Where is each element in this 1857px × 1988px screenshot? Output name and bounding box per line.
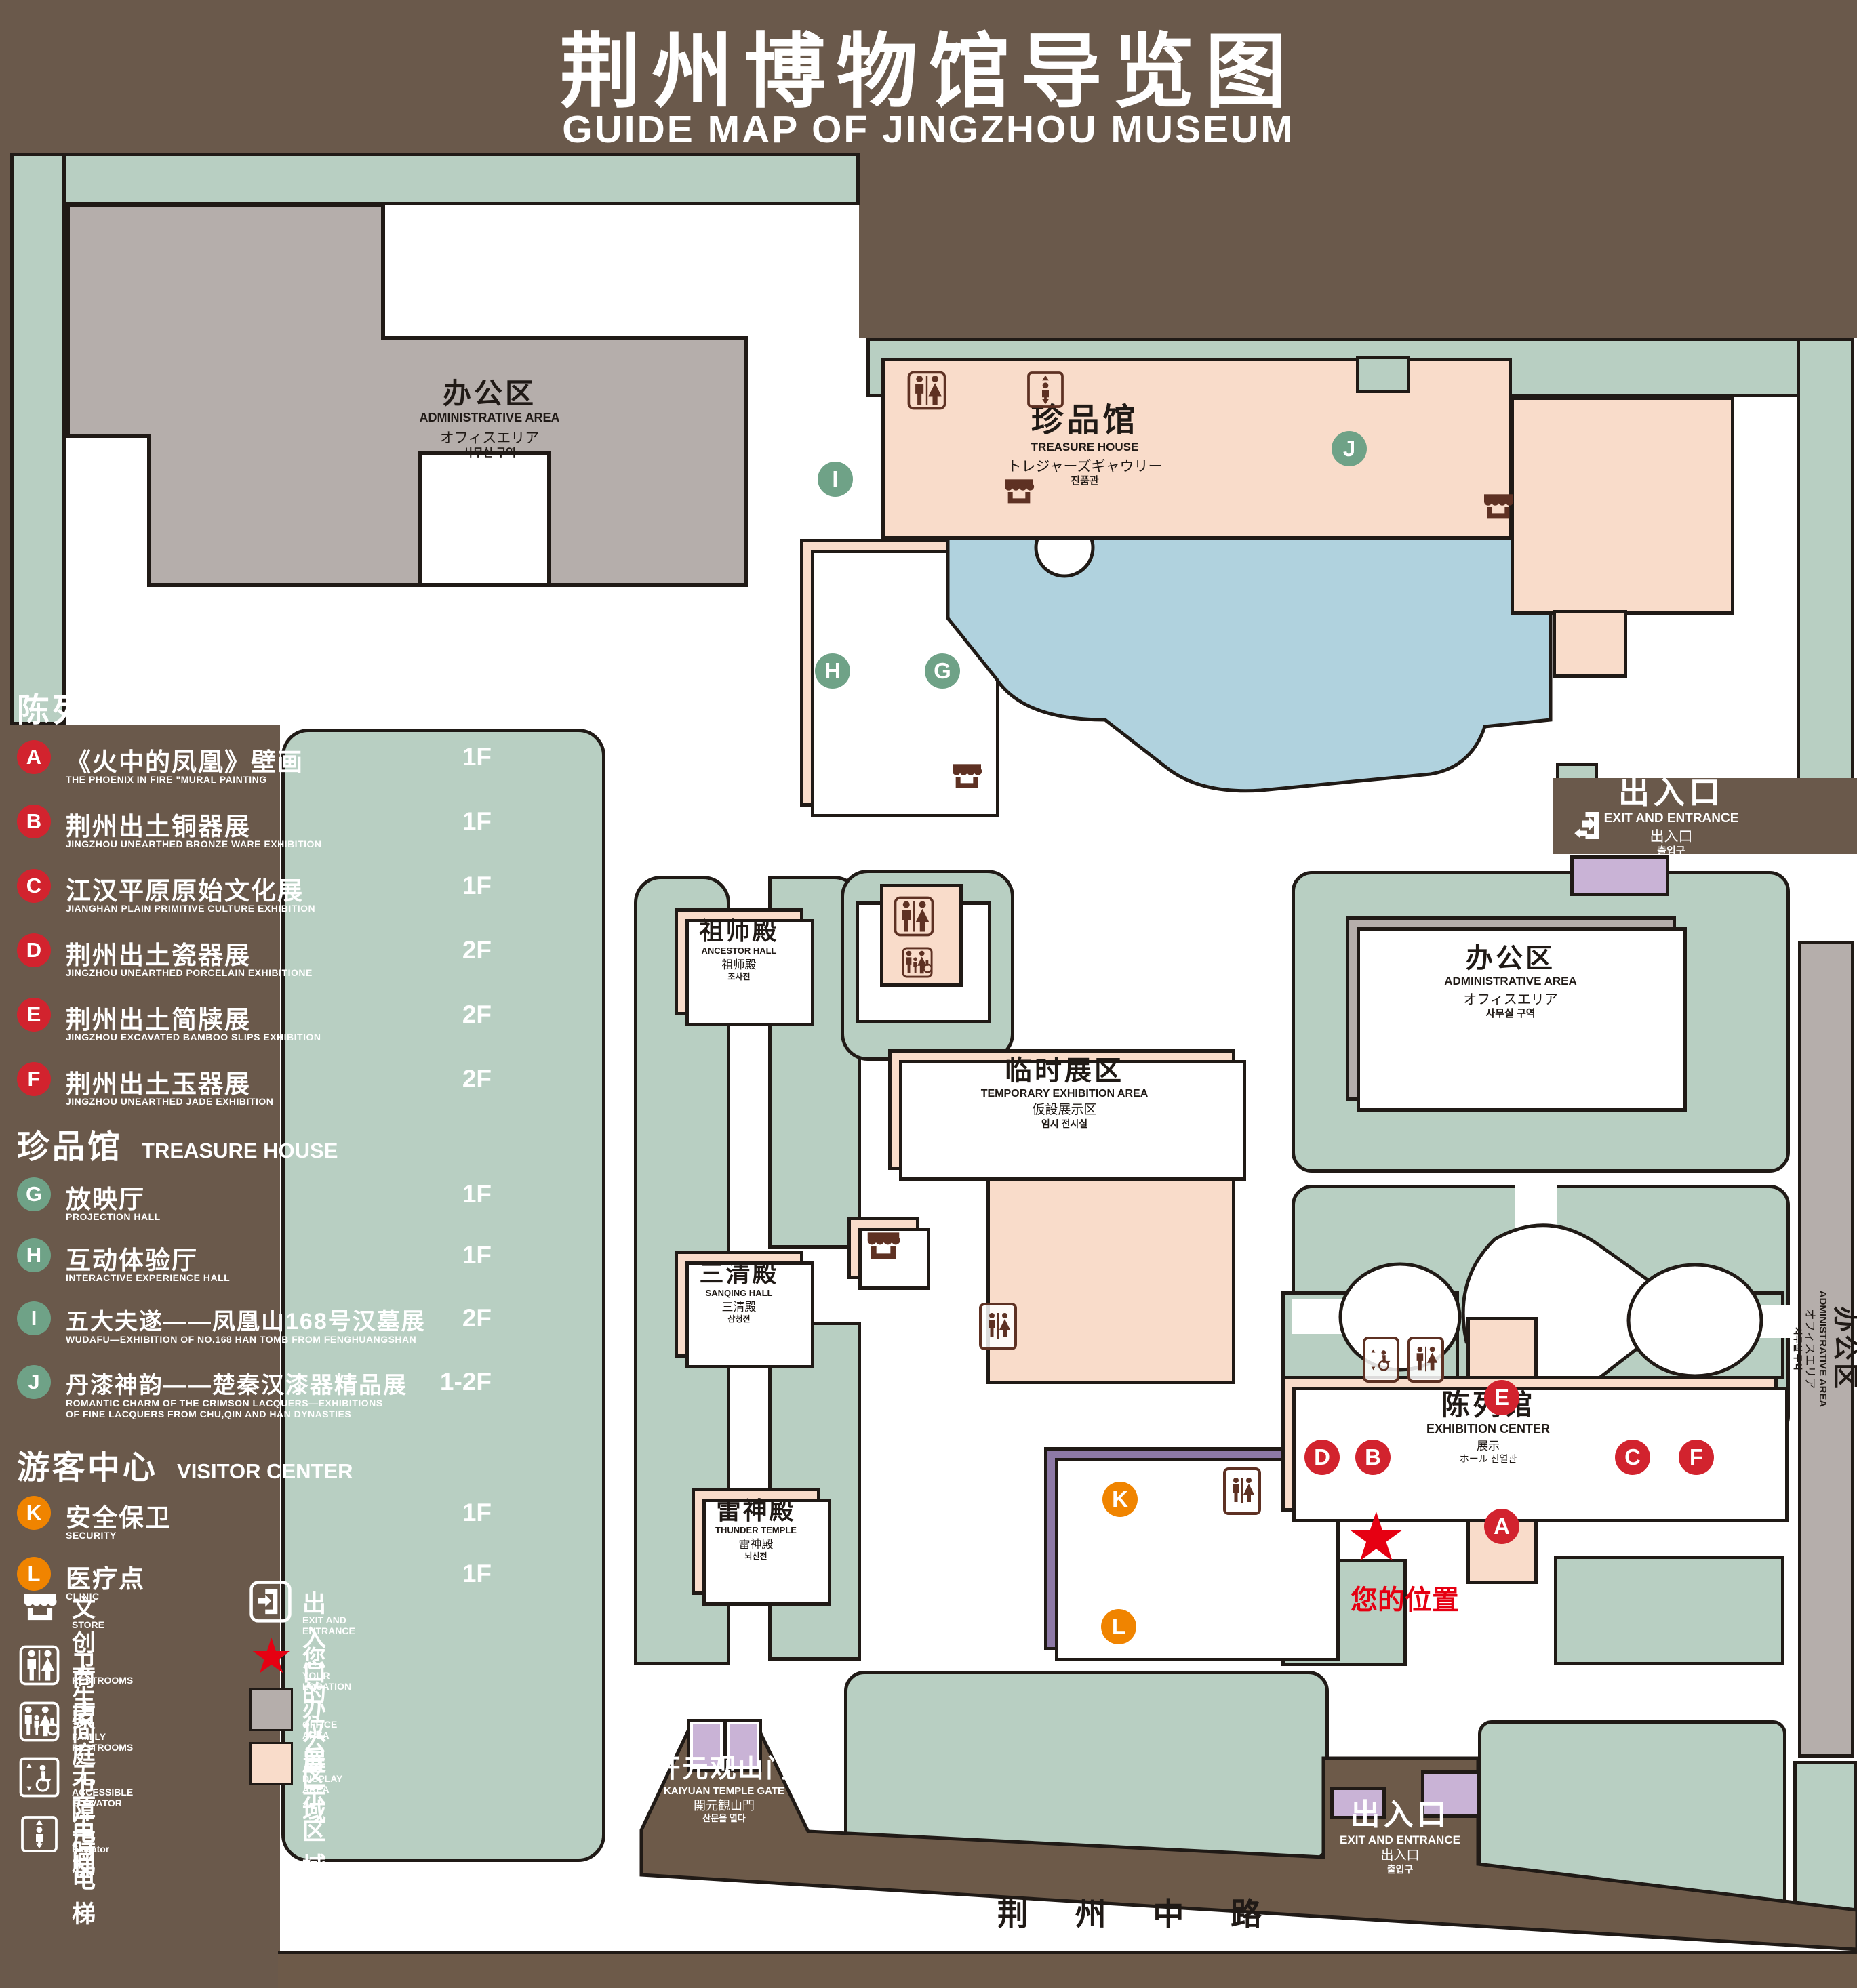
map-marker-C: C — [1615, 1440, 1650, 1475]
admin-right-sign: 办公区 ADMINISTRATIVE AREA オフィスエリア 사무실 구역 — [1444, 942, 1577, 1020]
restrooms-icon — [1407, 1337, 1444, 1383]
main-road-label: 荆 州 中 路 — [970, 1890, 1309, 1934]
map-marker-K: K — [1102, 1482, 1138, 1517]
map-marker-H: H — [815, 653, 850, 689]
your-location-label: 您的位置 — [1330, 1578, 1479, 1617]
map-marker-D: D — [1304, 1440, 1340, 1475]
treasure-house-top-notch — [1356, 356, 1410, 393]
restrooms-icon — [19, 1641, 60, 1690]
visitor-center-sign: 游客中心 VISITOR CENTER ビジターセンター 관광객 센터 — [1120, 1537, 1256, 1625]
store-icon — [948, 758, 986, 796]
elevator-icon — [19, 1810, 60, 1859]
store-icon — [1269, 1552, 1314, 1597]
thunder-temple-sign: 雷神殿 THUNDER TEMPLE 雷神殿 뇌신전 — [715, 1496, 797, 1562]
restrooms-icon — [1223, 1467, 1261, 1515]
map-marker-A: A — [1484, 1509, 1519, 1544]
entrance-building-topright — [1570, 855, 1669, 896]
admin-area-topleft — [64, 202, 753, 592]
location-star-icon: ★ — [249, 1632, 294, 1681]
family-restrooms-icon — [19, 1697, 60, 1746]
family-restrooms-icon — [902, 944, 933, 981]
store-icon — [19, 1587, 61, 1629]
exit-entrance-icon — [249, 1581, 292, 1623]
admin-topleft-sign: 办公区 ADMINISTRATIVE AREA オフィスエリア 사무실 구역 — [420, 377, 560, 460]
temporary-area-sign: 临时展区 TEMPORARY EXHIBITION AREA 仮設展示区 임시 … — [981, 1055, 1149, 1130]
restrooms-icon — [894, 892, 934, 941]
your-location-star-icon: ★ — [1346, 1503, 1407, 1571]
elevator-icon — [1025, 365, 1066, 415]
restrooms-icon — [907, 366, 946, 415]
admin-strip-sign: 办公区 ADMINISTRATIVE AREA オフィスエリア 사무실 구역 — [1792, 1291, 1857, 1408]
store-icon — [1000, 473, 1038, 511]
accessible-elevator-icon — [1363, 1337, 1399, 1383]
kaiyuan-gate-sign: 开元观山门 KAIYUAN TEMPLE GATE 開元観山門 산문을 열다 — [654, 1754, 793, 1824]
sanqing-hall-sign: 三清殿 SANQING HALL 三清殿 삼청전 — [699, 1259, 778, 1324]
guide-map-poster: { "title": { "zh": "荆州博物馆导览图", "en": "GU… — [0, 0, 1857, 1985]
map-marker-F: F — [1679, 1440, 1714, 1475]
exit-bottom-sign: 出入口 EXIT AND ENTRANCE 出入口 출입구 — [1340, 1798, 1460, 1875]
map-marker-G: G — [925, 653, 960, 689]
accessible-elevator-icon — [19, 1753, 60, 1802]
store-icon — [862, 1225, 904, 1267]
main-road — [278, 1951, 1857, 1988]
exit-entrance-icon — [1570, 805, 1611, 846]
map-marker-I: I — [818, 462, 853, 497]
map-marker-B: B — [1355, 1440, 1391, 1475]
restrooms-icon — [979, 1303, 1017, 1350]
ancestor-hall-sign: 祖师殿 ANCESTOR HALL 祖师殿 조사전 — [699, 916, 778, 982]
map-marker-L: L — [1101, 1609, 1136, 1644]
map-marker-E: E — [1484, 1380, 1519, 1415]
exit-topright-sign: 出入口 EXIT AND ENTRANCE 出入口 출입구 — [1604, 774, 1739, 857]
store-icon — [1479, 488, 1517, 526]
map-marker-J: J — [1332, 431, 1367, 466]
